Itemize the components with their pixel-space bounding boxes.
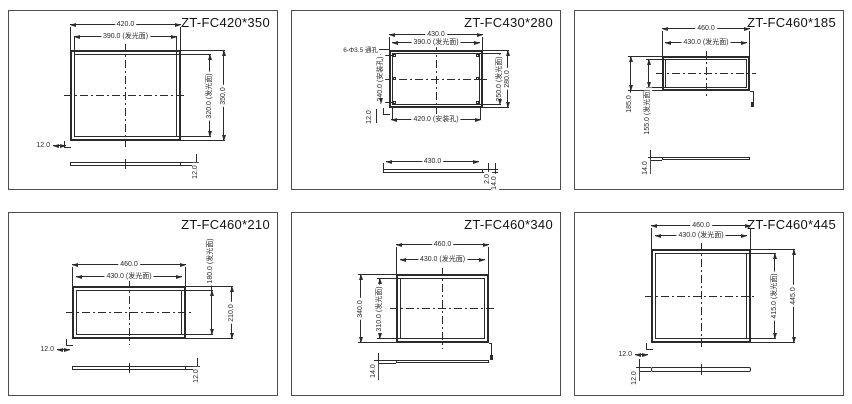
drawing-cell-fc460x210: ZT-FC460*210 460.0 430.0 (发光面) 180.0 (发光… — [8, 212, 278, 396]
dim-label-thickness: 12.0 — [631, 369, 639, 387]
side-view-bar — [396, 360, 489, 363]
drawing-cell-fc460x445: ZT-FC460*445 460.0 430.0 (发光面) 415.0 (发光… — [574, 212, 844, 396]
dim-label-light-height: 250.0 (发光面) — [496, 54, 504, 103]
dim-label-light-height: 155.0 (发光面) — [644, 87, 652, 136]
dim-label-outer-width: 460.0 — [118, 261, 140, 269]
extension-line — [70, 27, 71, 50]
dim-line-light-height — [211, 290, 212, 335]
extension-line — [482, 37, 483, 50]
dim-label-light-width: 430.0 (发光面) — [681, 39, 730, 47]
centerline-vertical — [436, 44, 437, 114]
dim-label-thickness: 14.0 — [370, 362, 378, 380]
dim-line-holes-height: 240.0 (安装孔) — [380, 54, 381, 104]
mounting-hole — [476, 54, 479, 57]
panel-title: ZT-FC460*445 — [747, 217, 836, 232]
extension-line — [74, 36, 75, 54]
corner-detail — [383, 108, 390, 115]
dim-line-thickness — [639, 359, 640, 381]
dim-label-outer-height: 280.0 — [504, 68, 512, 90]
dim-label-outer-height: 445.0 — [790, 285, 798, 307]
extension-line — [72, 267, 73, 286]
spec-sheet: ZT-FC420*350 420.0 390.0 (发光面) 320.0 (发光… — [0, 0, 852, 404]
drawing-cell-fc430x280: ZT-FC430*280 430.0 390.0 (发光面) 6-Φ3.5 通孔… — [291, 10, 561, 190]
panel-title: ZT-FC460*185 — [747, 15, 836, 30]
extension-line — [177, 136, 211, 137]
extension-line — [651, 228, 652, 249]
dim-label-holes-height: 240.0 (安装孔) — [377, 54, 385, 103]
centerline-vertical — [701, 243, 702, 349]
dim-label-outer-height: 340.0 — [357, 298, 365, 320]
corner-detail — [66, 339, 73, 346]
dim-line-holes-width: 420.0 (安装孔) — [391, 119, 481, 120]
dim-label-light-width: 430.0 (发光面) — [104, 273, 153, 281]
dim-line-light-width: 390.0 (发光面) — [392, 42, 480, 43]
dim-line-outer-width: 460.0 — [651, 225, 751, 226]
dim-label-side-width: 430.0 — [422, 158, 444, 166]
dim-line-light-width: 430.0 (发光面) — [655, 235, 747, 236]
extension-line — [488, 247, 489, 274]
dim-line-light-height: 415.0 (发光面) — [774, 253, 775, 339]
extension-line — [751, 342, 795, 343]
extension-line — [181, 140, 225, 141]
dim-line-outer-height: 280.0 — [507, 50, 508, 108]
dim-line-thickness — [650, 150, 651, 174]
panel-title: ZT-FC420*350 — [181, 15, 270, 30]
centerline-vertical — [442, 268, 443, 349]
dim-label-light-height: 180.0 (发光面) — [207, 236, 215, 285]
panel-title: ZT-FC460*340 — [464, 217, 553, 232]
extension-line — [182, 290, 213, 291]
extension-line — [396, 247, 397, 274]
dim-label-outer-width: 460.0 — [690, 222, 712, 230]
dim-line-light-width: 430.0 (发光面) — [665, 42, 747, 43]
dim-line-light-height — [648, 59, 649, 88]
dim-line-light-width: 430.0 (发光面) — [400, 259, 485, 260]
dim-line-outer-height: 445.0 — [793, 249, 794, 343]
extension-line — [750, 228, 751, 249]
dim-line-outer-width: 420.0 — [70, 24, 181, 25]
dim-label-light-width: 430.0 (发光面) — [676, 232, 725, 240]
dim-line-light-height: 250.0 (发光面) — [499, 53, 500, 105]
extension-line — [749, 31, 750, 56]
dim-line-light-height: 320.0 (发光面) — [209, 54, 210, 137]
dim-line-outer-height: 210.0 — [231, 286, 232, 339]
leader-line — [379, 49, 390, 50]
dim-line-light-width: 430.0 (发光面) — [76, 276, 182, 277]
extension-line — [182, 334, 213, 335]
drawing-cell-fc460x340: ZT-FC460*340 460.0 430.0 (发光面) 340.0 310… — [291, 212, 561, 396]
mounting-hole — [393, 77, 396, 80]
extension-line — [628, 56, 662, 57]
extension-line — [181, 50, 225, 51]
panel-title: ZT-FC430*280 — [464, 15, 553, 30]
centerline-vertical — [125, 44, 126, 147]
dim-label-outer-height: 185.0 — [626, 93, 634, 115]
dim-label-thickness: 12.0 — [192, 163, 200, 181]
extension-line — [180, 27, 181, 50]
dim-line-light-height: 310.0 (发光面) — [379, 278, 380, 339]
dim-label-corner-offset: 12.0 — [366, 108, 374, 126]
dim-label-thickness: 14.0 — [491, 174, 499, 192]
dim-label-outer-height: 350.0 — [220, 85, 228, 107]
dim-line-side-width: 430.0 — [386, 161, 479, 162]
dim-label-outer-width: 430.0 — [425, 31, 447, 39]
dim-line-outer-height: 340.0 — [360, 274, 361, 343]
wire-connector — [751, 102, 754, 107]
centerline-vertical — [129, 280, 130, 345]
extension-line — [186, 338, 233, 339]
dim-label-corner-offset: 12.0 — [34, 142, 52, 150]
dim-label-holes-width: 420.0 (安装孔) — [411, 116, 460, 124]
dim-line-corner-offset — [376, 109, 377, 123]
dim-line-corner-offset: 12.0 — [57, 349, 70, 350]
dim-label-outer-width: 420.0 — [115, 21, 137, 29]
dim-line-light-width: 390.0 (发光面) — [74, 36, 177, 37]
dim-line-corner-offset: 12.0 — [53, 145, 66, 146]
extension-line — [358, 274, 396, 275]
side-view-bar — [662, 157, 750, 160]
dim-line-thickness — [378, 353, 379, 380]
dim-label-light-width: 390.0 (发光面) — [101, 33, 150, 41]
dim-line-outer-width: 460.0 — [72, 264, 186, 265]
dim-label-thickness: 14.0 — [642, 159, 650, 177]
dim-line-outer-height: 350.0 — [223, 50, 224, 141]
side-view-bar — [383, 169, 483, 173]
mounting-hole — [476, 101, 479, 104]
extension-line — [751, 249, 795, 250]
dim-line-outer-height — [630, 56, 631, 91]
drawing-cell-fc420x350: ZT-FC420*350 420.0 390.0 (发光面) 320.0 (发光… — [8, 10, 278, 190]
side-view-center-tick — [129, 363, 130, 373]
hole-spec-note: 6-Φ3.5 通孔 — [330, 44, 378, 54]
mounting-hole — [393, 54, 396, 57]
extension-line — [662, 31, 663, 56]
extension-line — [177, 54, 211, 55]
dim-line-corner-offset: 12.0 — [635, 354, 648, 355]
dim-label-light-height: 415.0 (发光面) — [771, 271, 779, 320]
dim-label-light-height: 310.0 (发光面) — [376, 284, 384, 333]
dim-label-light-height: 320.0 (发光面) — [206, 71, 214, 120]
extension-line — [176, 36, 177, 54]
dim-label-outer-height: 210.0 — [228, 302, 236, 324]
extension-line — [186, 286, 233, 287]
dim-line-outer-width: 460.0 — [396, 244, 489, 245]
dim-label-outer-width: 460.0 — [695, 25, 717, 33]
dim-label-outer-width: 460.0 — [432, 241, 454, 249]
dim-line-outer-width: 460.0 — [662, 28, 750, 29]
wire-connector — [490, 355, 493, 360]
side-view-center-tick — [125, 159, 126, 169]
dim-label-corner-offset: 12.0 — [616, 351, 634, 359]
mounting-hole — [476, 77, 479, 80]
drawing-cell-fc460x185: ZT-FC460*185 460.0 430.0 (发光面) 185.0 155… — [574, 10, 844, 190]
dim-label-corner-offset: 12.0 — [38, 346, 56, 354]
dim-label-light-width: 430.0 (发光面) — [418, 256, 467, 264]
extension-line — [358, 342, 396, 343]
mounting-hole — [393, 101, 396, 104]
power-wire — [753, 91, 754, 102]
side-view-center-tick — [701, 364, 702, 375]
extension-line — [185, 267, 186, 286]
corner-detail — [646, 343, 653, 350]
panel-title: ZT-FC460*210 — [181, 217, 270, 232]
dim-label-light-width: 390.0 (发光面) — [411, 39, 460, 47]
centerline-vertical — [706, 51, 707, 96]
dim-line-outer-width: 430.0 — [389, 34, 483, 35]
dim-label-thickness: 12.0 — [193, 367, 201, 385]
